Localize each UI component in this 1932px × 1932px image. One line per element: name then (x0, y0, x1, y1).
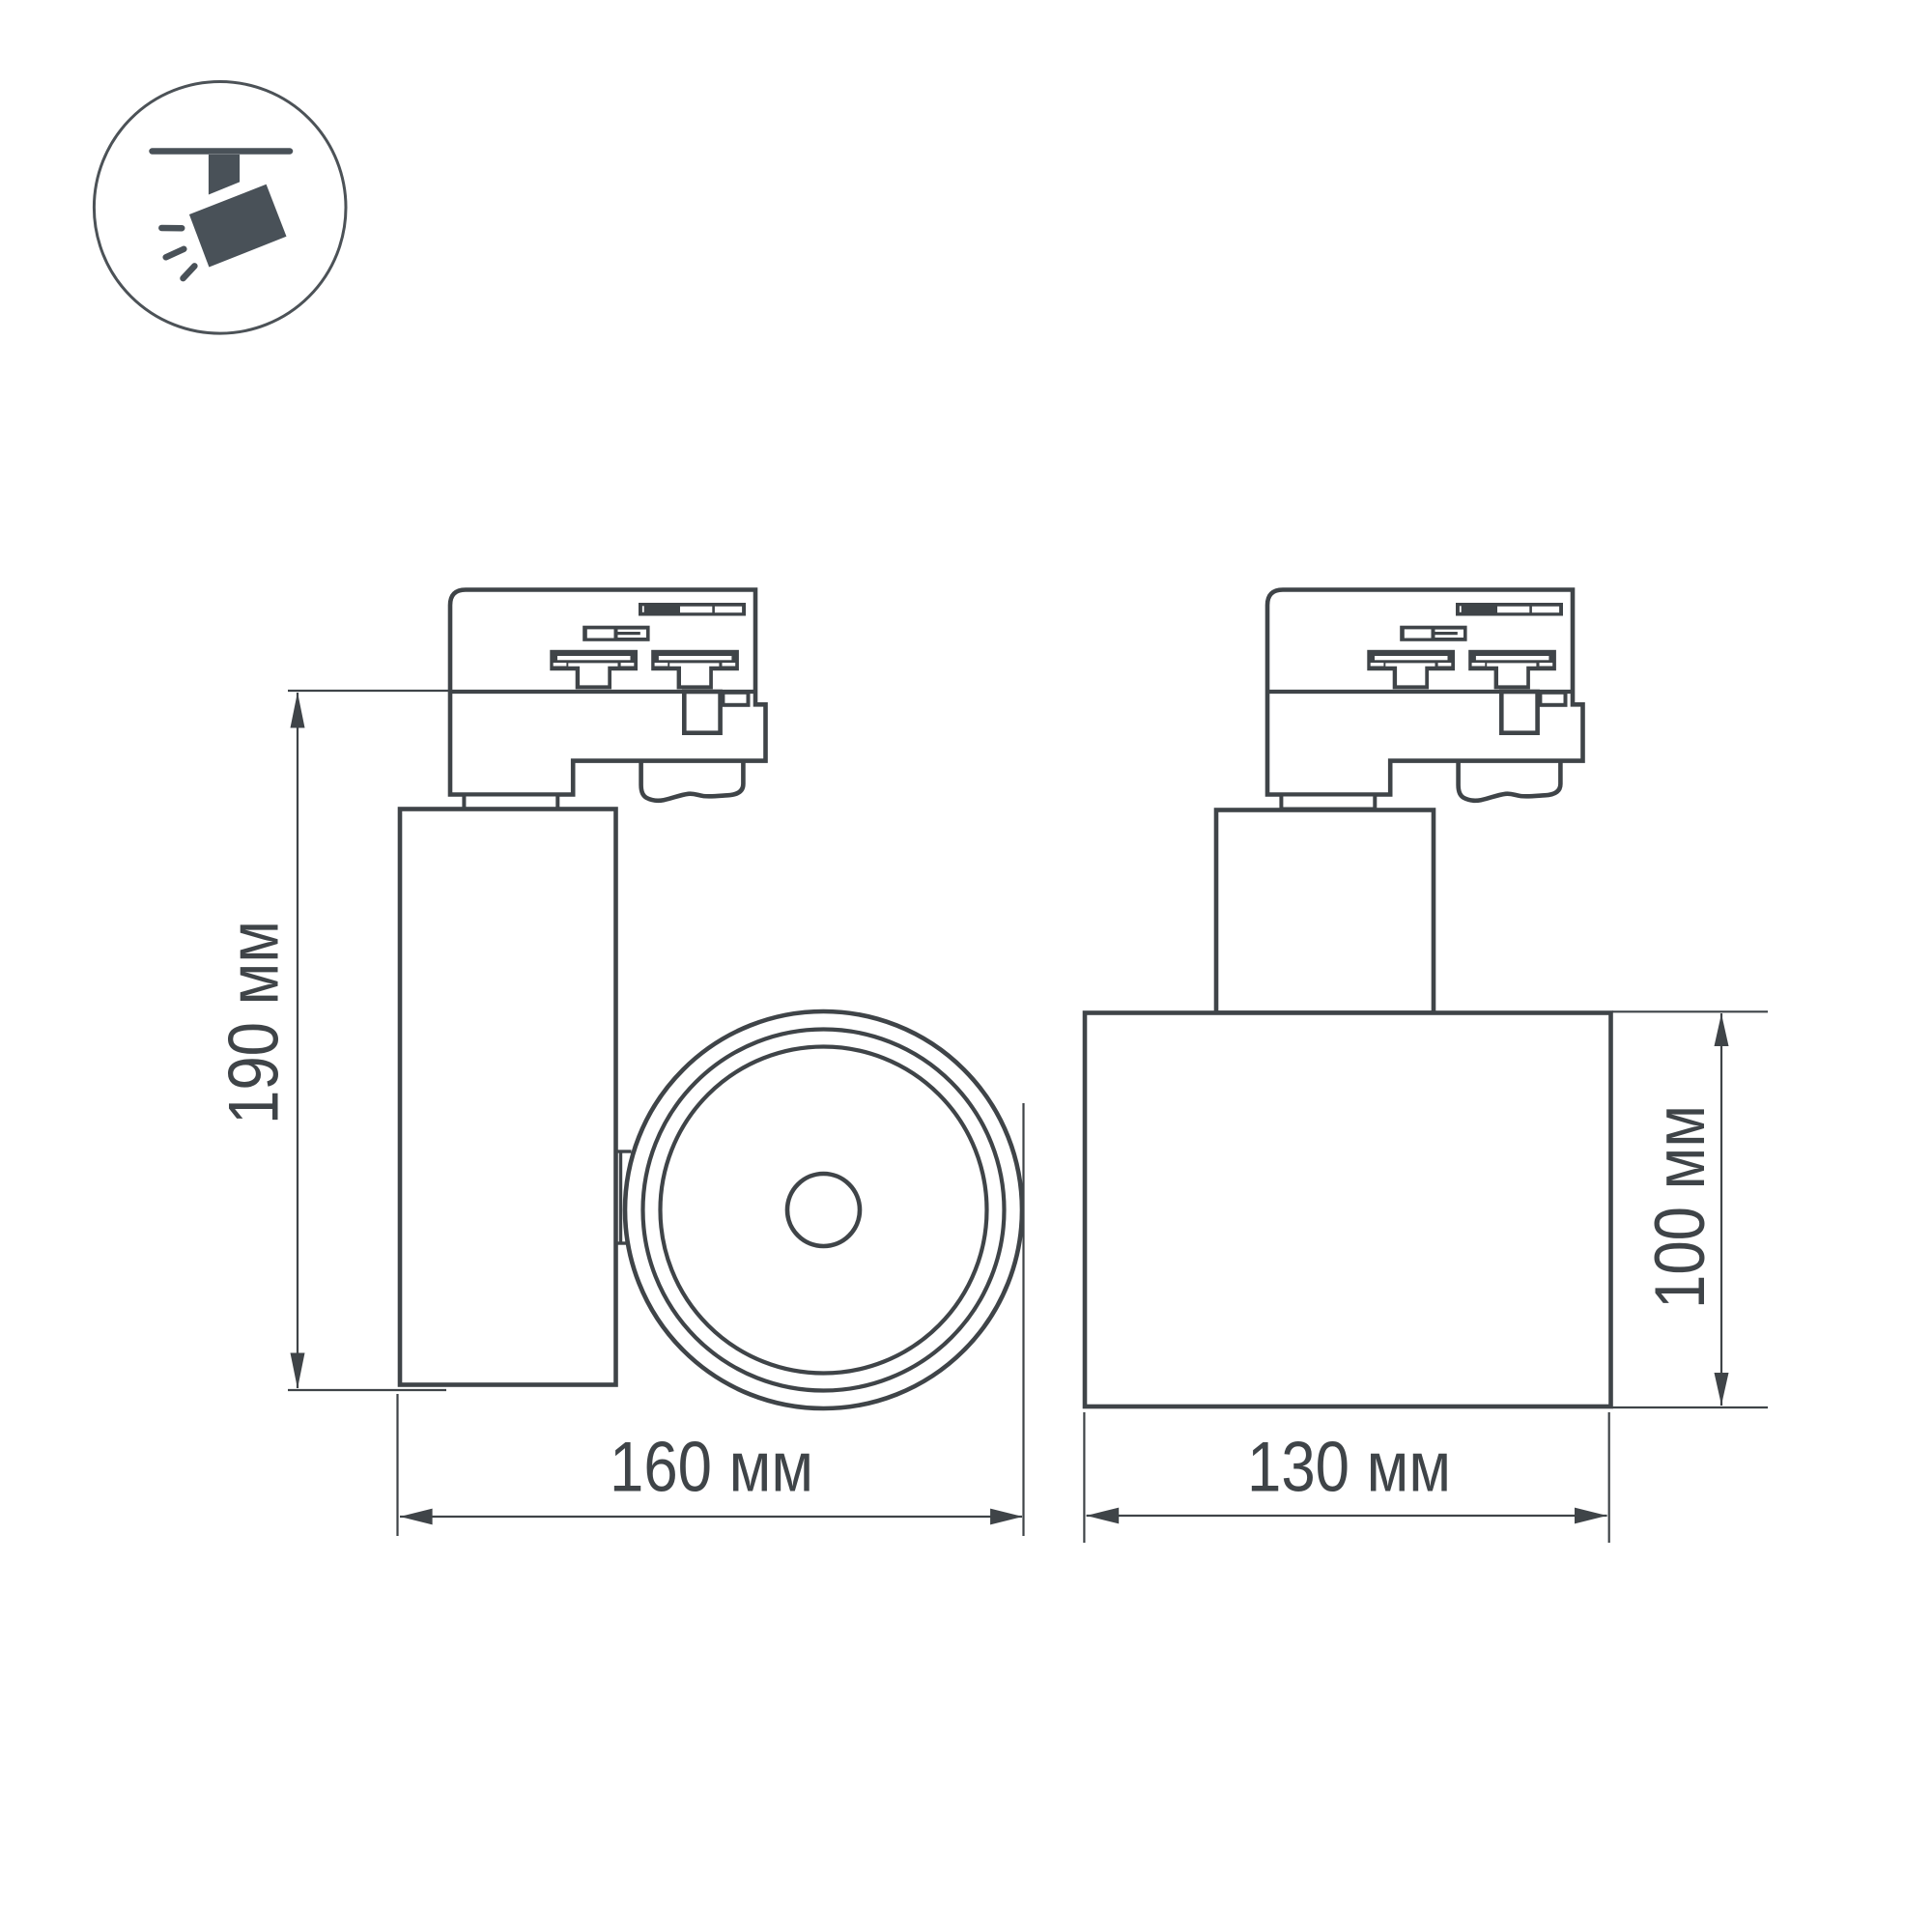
svg-text:100 мм: 100 мм (1639, 1105, 1719, 1309)
svg-text:130 мм: 130 мм (1247, 1427, 1451, 1507)
svg-text:190 мм: 190 мм (213, 921, 294, 1124)
svg-text:160 мм: 160 мм (610, 1427, 813, 1507)
